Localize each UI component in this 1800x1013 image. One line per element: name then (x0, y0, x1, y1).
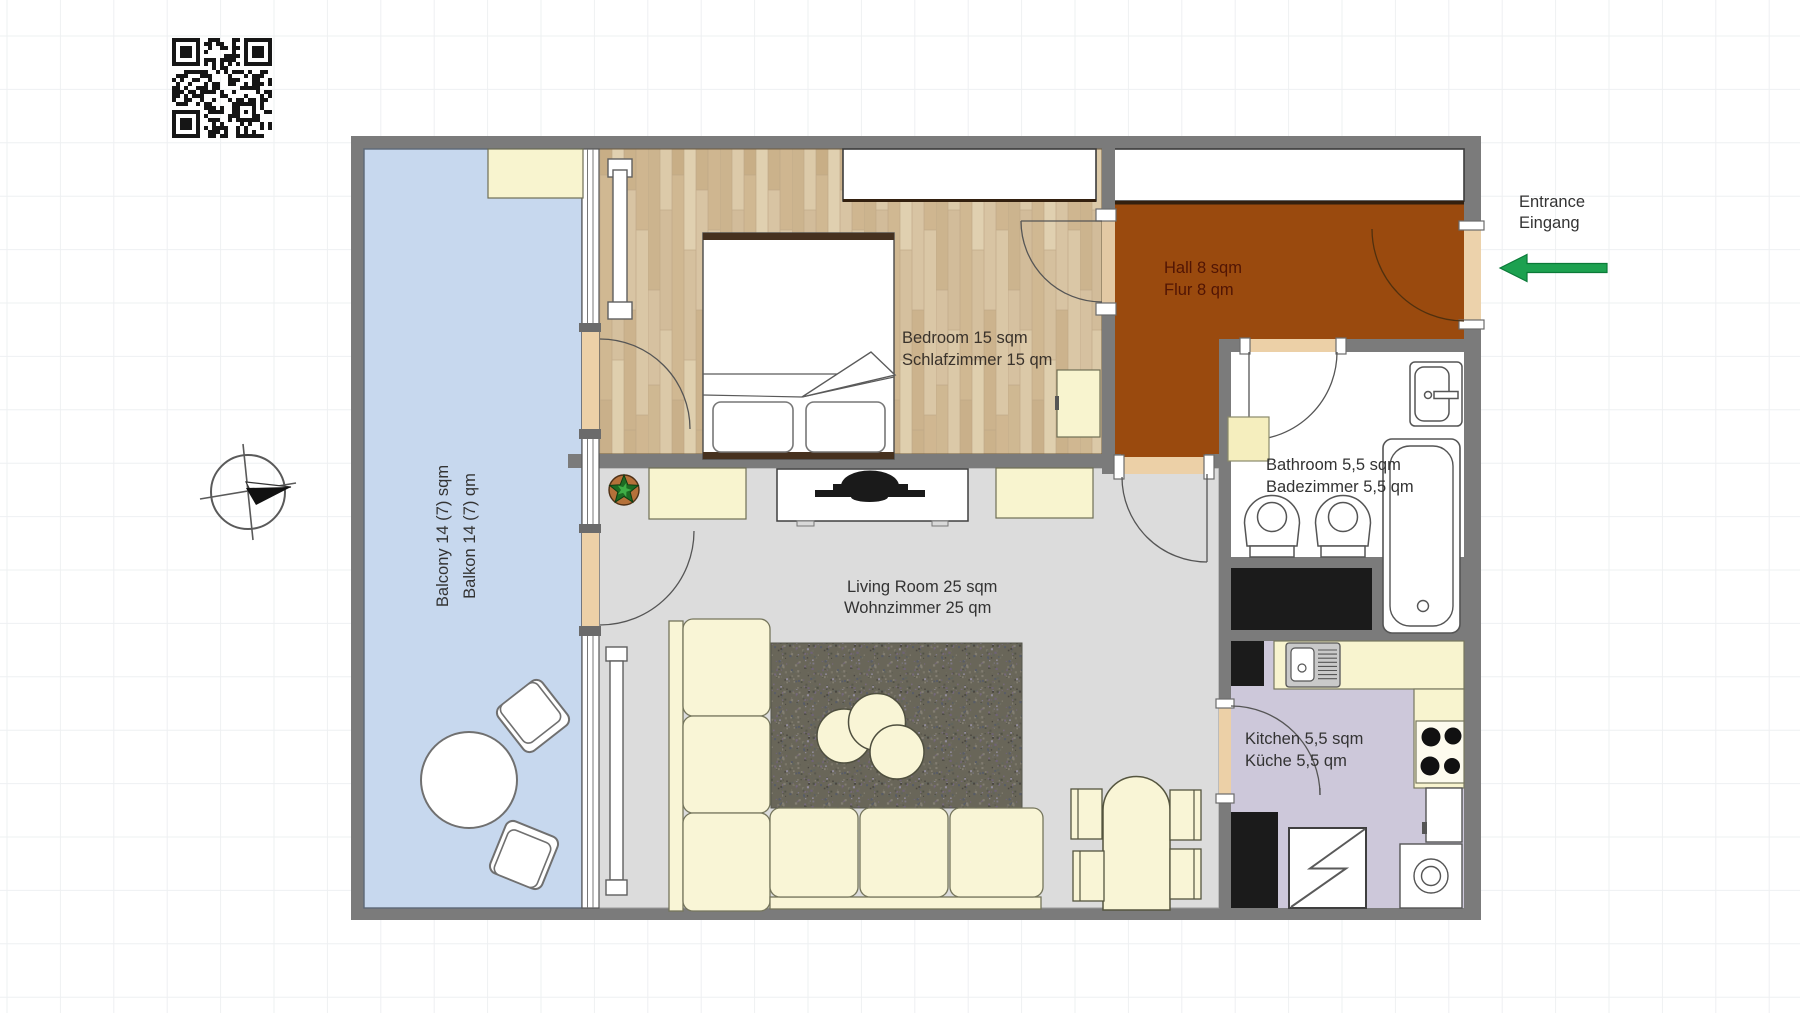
svg-text:Kitchen 5,5 sqm: Kitchen 5,5 sqm (1245, 730, 1363, 748)
svg-text:Bathroom 5,5 sqm: Bathroom 5,5 sqm (1266, 456, 1401, 474)
svg-text:Entrance: Entrance (1519, 193, 1585, 211)
svg-text:Bedroom 15 sqm: Bedroom 15 sqm (902, 329, 1028, 347)
svg-text:Badezimmer 5,5 qm: Badezimmer 5,5 qm (1266, 478, 1414, 496)
svg-text:Küche 5,5 qm: Küche 5,5 qm (1245, 752, 1347, 770)
svg-text:Living Room 25 sqm: Living Room 25 sqm (847, 578, 997, 596)
svg-text:Wohnzimmer 25 qm: Wohnzimmer 25 qm (844, 599, 991, 617)
svg-text:Hall 8 sqm: Hall 8 sqm (1164, 259, 1242, 277)
svg-text:Schlafzimmer 15 qm: Schlafzimmer 15 qm (902, 351, 1052, 369)
svg-text:Flur 8 qm: Flur 8 qm (1164, 281, 1234, 299)
svg-text:Balkon 14 (7) qm: Balkon 14 (7) qm (461, 473, 479, 599)
svg-text:Eingang: Eingang (1519, 214, 1580, 232)
svg-text:Balcony 14 (7) sqm: Balcony 14 (7) sqm (434, 465, 452, 607)
